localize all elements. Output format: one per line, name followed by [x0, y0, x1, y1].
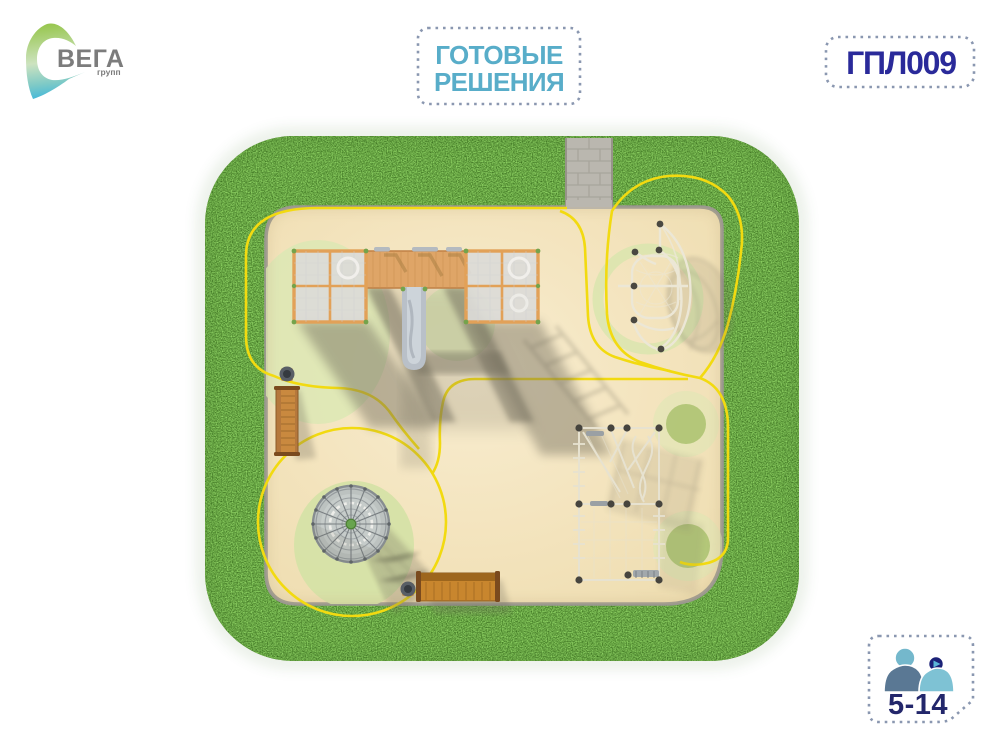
svg-text:РЕШЕНИЯ: РЕШЕНИЯ: [434, 67, 564, 97]
svg-text:5-14: 5-14: [888, 689, 948, 721]
svg-text:групп: групп: [97, 67, 121, 77]
svg-text:ГПЛ009: ГПЛ009: [846, 45, 956, 81]
svg-text:ГОТОВЫЕ: ГОТОВЫЕ: [435, 40, 563, 70]
